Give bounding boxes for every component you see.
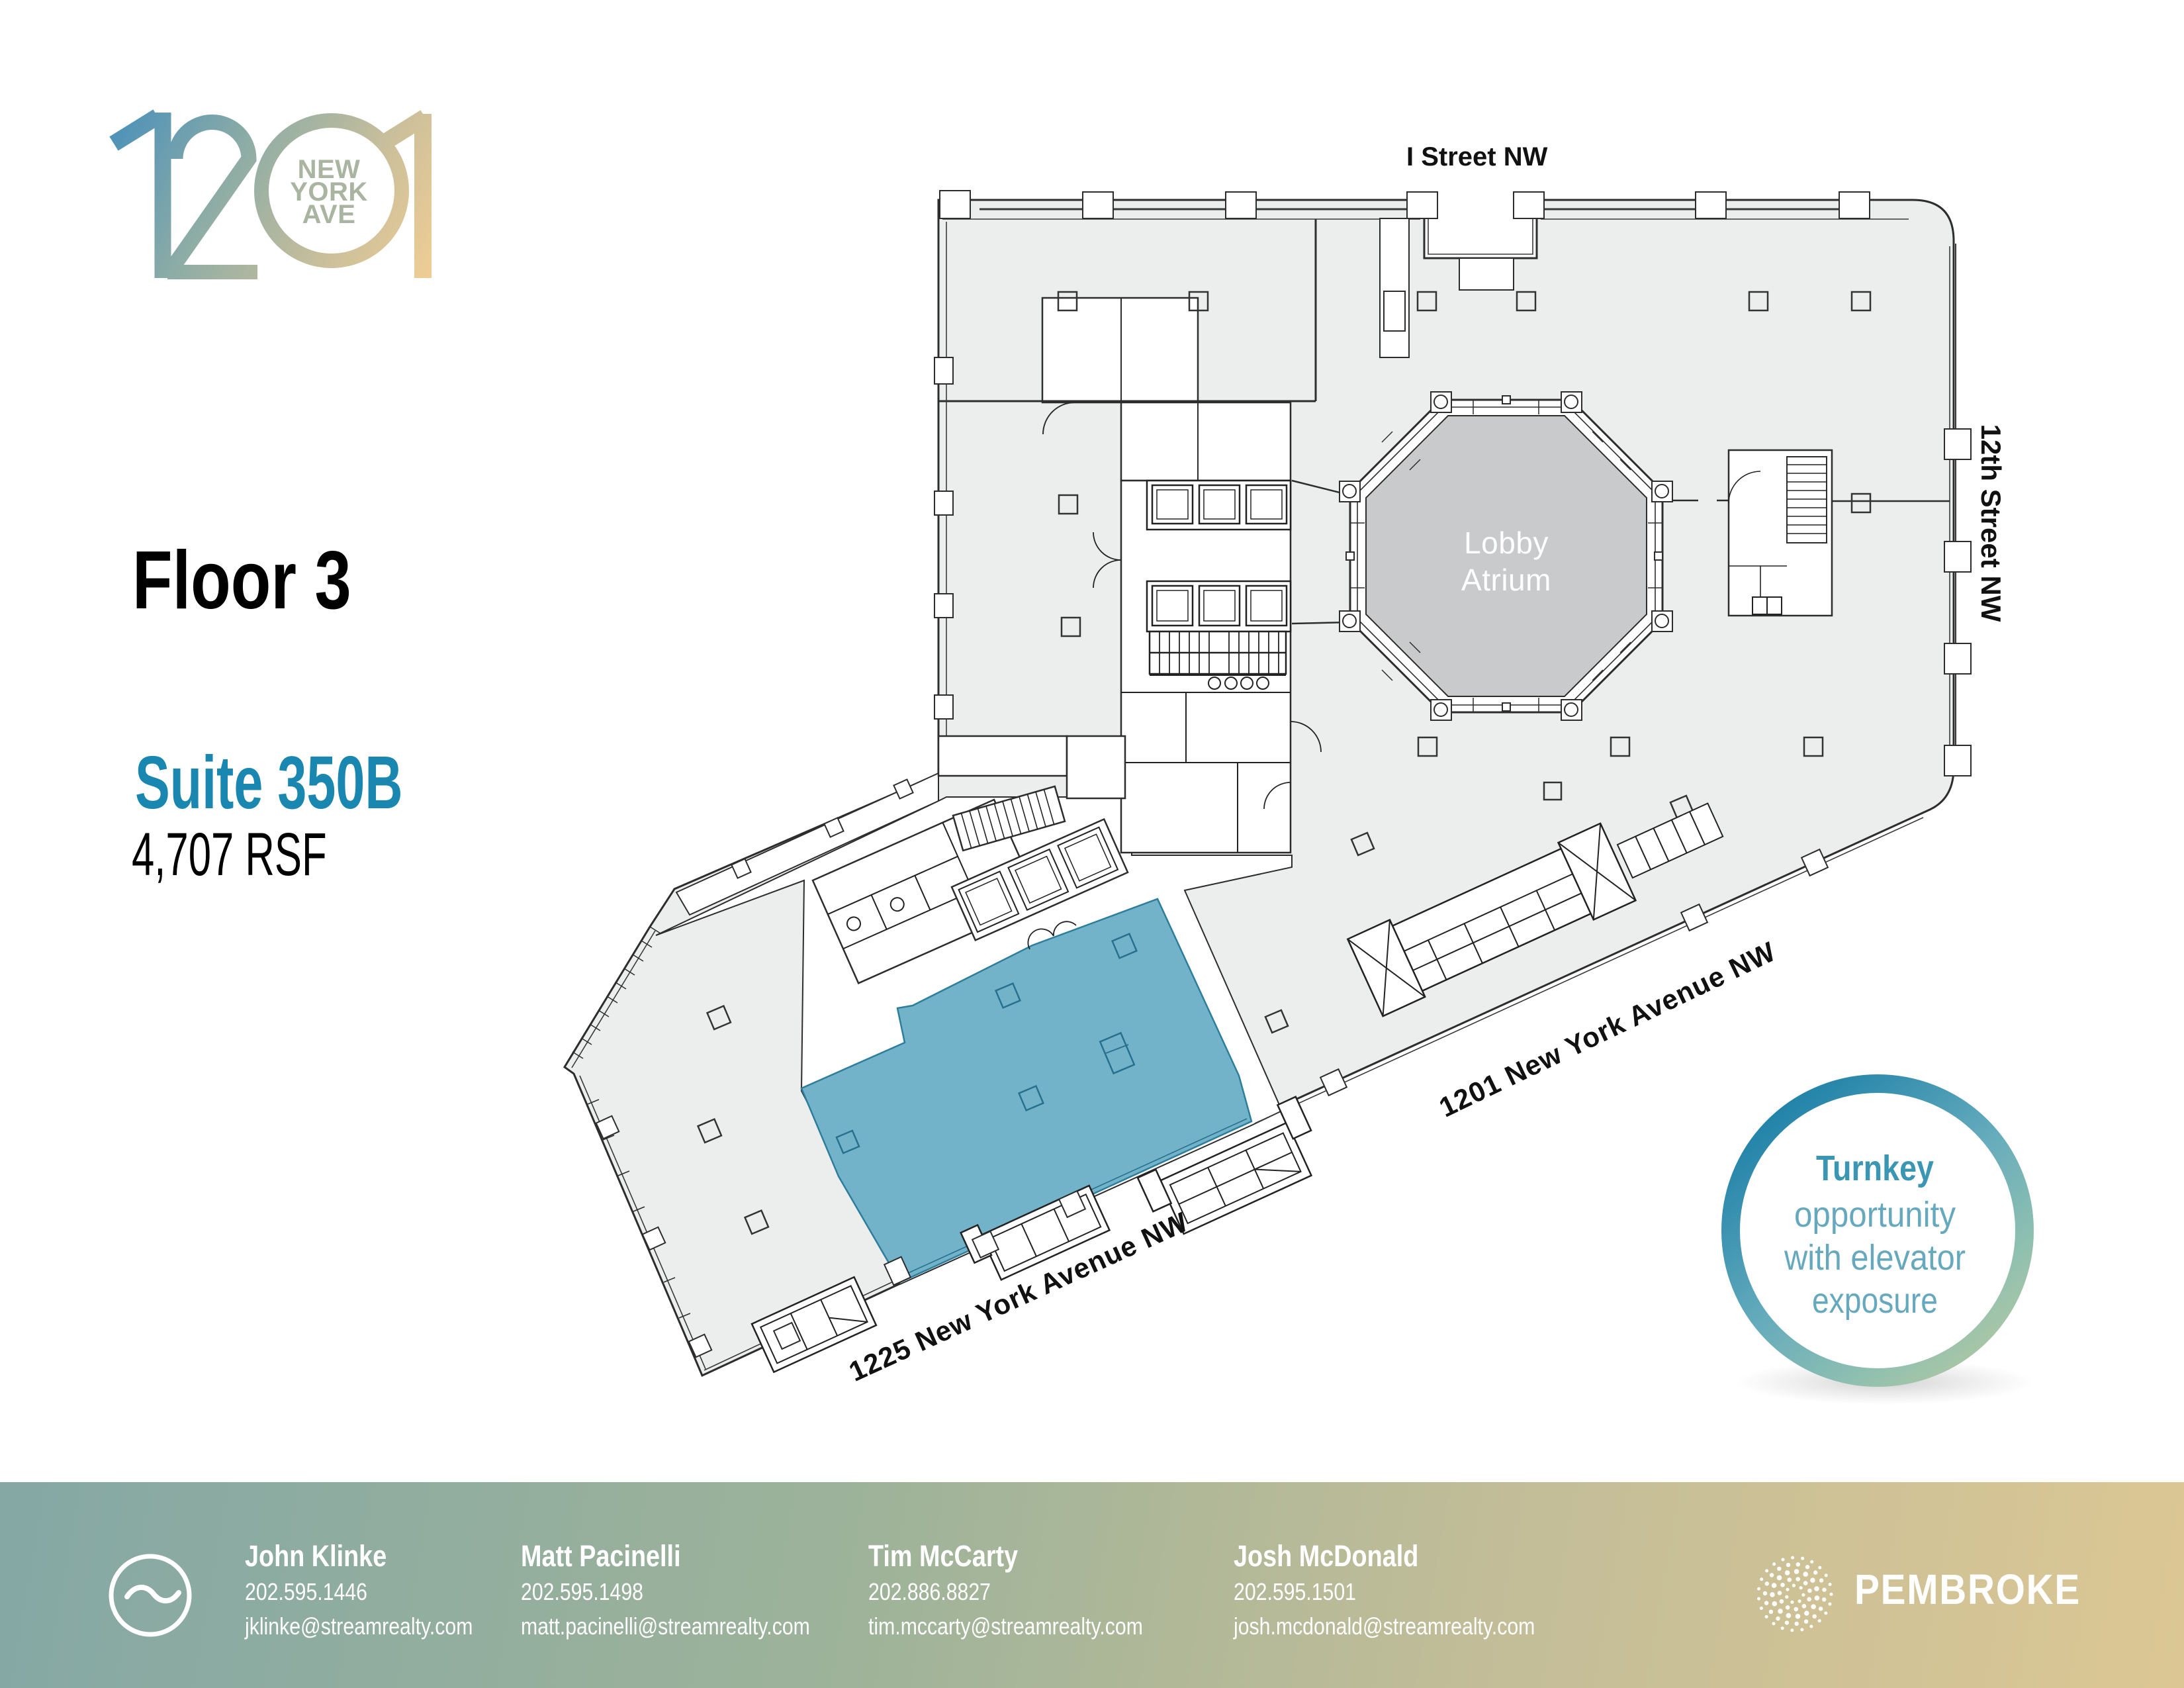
svg-text:PEMBROKE: PEMBROKE — [1854, 1566, 2081, 1613]
svg-text:with elevator: with elevator — [1784, 1238, 1966, 1278]
svg-text:exposure: exposure — [1812, 1281, 1938, 1321]
svg-text:Turnkey: Turnkey — [1816, 1149, 1934, 1188]
svg-text:opportunity: opportunity — [1794, 1195, 1956, 1235]
svg-text:I Street NW: I Street NW — [1406, 142, 1548, 171]
svg-text:Atrium: Atrium — [1461, 563, 1551, 597]
svg-text:Lobby: Lobby — [1464, 526, 1549, 560]
svg-text:12th Street NW: 12th Street NW — [1976, 424, 2007, 622]
svg-text:AVE: AVE — [302, 200, 356, 229]
